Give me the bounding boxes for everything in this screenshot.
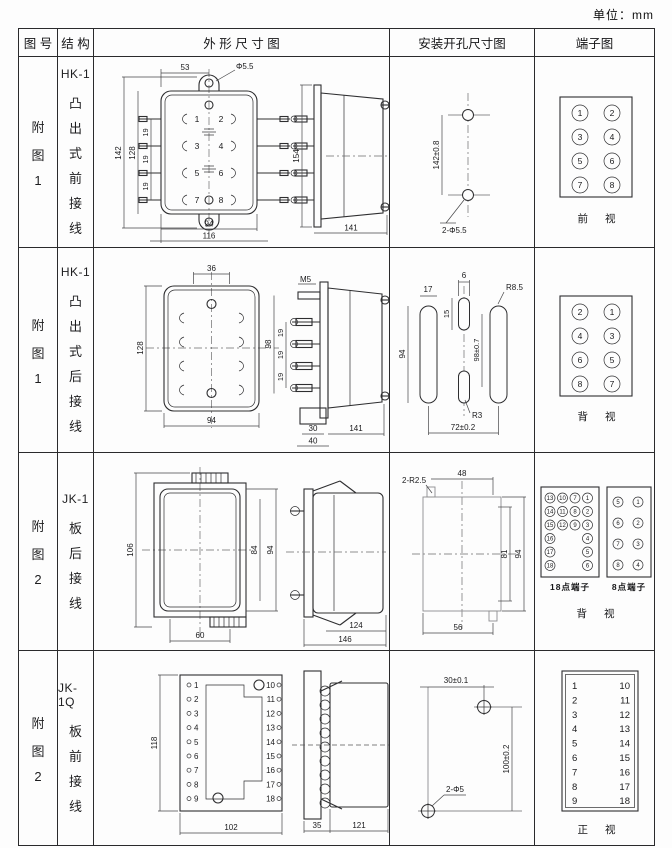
dim-label: 146 (338, 635, 352, 644)
spec-table: 图 号 结 构 外 形 尺 寸 图 安装开孔尺寸图 端子图 附 图 1 HK-1… (18, 28, 655, 846)
datasheet-page: 单位：mm 图 号 结 构 外 形 尺 寸 图 安装开孔尺寸图 端子图 附 图 … (0, 0, 672, 848)
terminal-number: 5 (195, 168, 200, 178)
terminal-number: 5 (616, 500, 620, 506)
front-view: 36 128 94 (136, 264, 279, 428)
terminal-number: 11 (267, 695, 276, 704)
dim-label: 19 (276, 351, 285, 359)
terminal-number: 1 (636, 500, 640, 506)
header-structure: 结 构 (58, 29, 94, 57)
terminal-studs (291, 292, 321, 392)
terminal-number: 8 (577, 379, 582, 389)
structure-char: 线 (69, 796, 82, 815)
terminal-number: 17 (546, 550, 553, 556)
dim-label: 94 (398, 349, 407, 358)
terminal-number: 4 (636, 563, 640, 569)
row3-mounting-drawing: 2-R2.5 48 81 94 56 (390, 453, 534, 650)
terminal-number: 4 (577, 331, 582, 341)
terminal-number: 1 (195, 114, 200, 124)
structure-char: 接 (69, 568, 82, 587)
terminal-number: 7 (194, 766, 199, 775)
row3-outline-drawing: 106 84 94 60 (94, 453, 389, 650)
side-view: 124 146 (286, 481, 386, 647)
dim-label: 121 (352, 821, 366, 830)
terminal-number: 4 (609, 132, 614, 142)
terminal-number: 1 (577, 108, 582, 118)
row3-figure: 附 图 2 (19, 453, 58, 651)
structure-char: 板 (69, 518, 82, 537)
dim-label: 141 (344, 224, 358, 233)
terminal-number: 6 (616, 521, 620, 527)
terminal-number: 17 (266, 780, 275, 789)
row4-structure: JK-1Q 板 前 接 线 (58, 651, 94, 845)
dim-label: 94 (514, 549, 523, 558)
header-mounting: 安装开孔尺寸图 (390, 29, 535, 57)
contact-hooks (183, 114, 236, 205)
terminal-number: 7 (195, 195, 200, 205)
terminal-number: 3 (636, 542, 640, 548)
terminal-number: 8 (194, 780, 199, 789)
dim-label: 60 (196, 631, 205, 640)
side-view: 35 121 (292, 671, 389, 833)
front-view: 1 2 3 4 5 6 7 8 53 Φ5.5 142 128 (114, 62, 290, 243)
terminal-number: 1 (609, 307, 614, 317)
model-label: HK-1 (61, 67, 90, 81)
figure-char: 1 (34, 173, 41, 188)
terminal-number: 6 (194, 752, 199, 761)
header-outline: 外 形 尺 寸 图 (94, 29, 390, 57)
terminal-number: 8 (573, 510, 577, 516)
terminal-number: 6 (577, 355, 582, 365)
terminal-number: 4 (194, 724, 199, 733)
row1-terminal-cell: 1 2 3 4 5 6 7 8 前 视 (535, 57, 654, 248)
row3-structure: JK-1 板 后 接 线 (58, 453, 94, 651)
terminal-number: 3 (609, 331, 614, 341)
terminal-number: 7 (577, 180, 582, 190)
terminal-number: 2 (572, 695, 577, 706)
row2-mounting-cell: 17 6 15 94 98±0.7 R8.5 R3 72±0.2 (390, 248, 535, 453)
mounting-bolts (290, 507, 304, 600)
structure-char: 前 (69, 746, 82, 765)
row4-mounting-drawing: 30±0.1 100±0.2 2-Φ5 (390, 651, 534, 845)
terminal-number: 5 (585, 550, 589, 556)
dim-label: 40 (309, 437, 318, 446)
row2-figure: 附 图 1 (19, 248, 58, 453)
row3-outline-cell: 106 84 94 60 (94, 453, 390, 651)
model-label: JK-1 (62, 492, 89, 506)
terminal-block-caption: 18点端子 (550, 582, 590, 592)
terminal-number: 10 (266, 681, 275, 690)
terminal-number: 15 (546, 523, 553, 529)
terminal-number: 7 (616, 542, 620, 548)
dim-label: 72±0.2 (451, 423, 476, 432)
terminal-number: 14 (266, 738, 275, 747)
structure-char: 线 (69, 593, 82, 612)
dim-label: 19 (276, 373, 285, 381)
terminal-number: 7 (609, 379, 614, 389)
row4-terminal-diagram: 1 2 3 4 5 6 7 8 9 10 11 12 13 14 15 (536, 651, 654, 845)
terminal-number: 11 (620, 695, 630, 706)
row2-mounting-drawing: 17 6 15 94 98±0.7 R8.5 R3 72±0.2 (390, 248, 534, 452)
structure-char: 线 (69, 416, 82, 435)
dim-label: 102 (224, 823, 238, 832)
terminal-number: 8 (219, 195, 224, 205)
dim-label: 81 (500, 549, 509, 558)
terminal-number: 2 (636, 521, 640, 527)
terminal-studs (139, 117, 290, 203)
figure-char: 附 (31, 516, 44, 535)
dim-label: 116 (203, 232, 216, 241)
structure-char: 线 (69, 218, 82, 237)
terminal-number: 10 (619, 681, 630, 692)
row4-outline-cell: 1 2 3 4 5 6 7 8 9 10 11 12 13 (94, 651, 390, 845)
terminal-number: 14 (619, 739, 630, 750)
structure-char: 式 (69, 341, 82, 360)
terminal-number: 2 (609, 108, 614, 118)
terminal-number: 6 (219, 168, 224, 178)
terminal-number: 6 (572, 753, 577, 764)
row2-terminal-diagram: 2 1 4 3 6 5 8 7 背 视 (536, 248, 654, 452)
terminal-number: 11 (559, 510, 566, 516)
row1-mounting-cell: 142±0.8 2-Φ5.5 (390, 57, 535, 248)
view-caption: 前 视 (577, 212, 622, 225)
dim-label: 2-Φ5 (446, 785, 464, 794)
right-terminals: 10 11 12 13 14 15 16 17 18 (266, 681, 281, 804)
dim-label: 118 (150, 736, 159, 749)
dim-label: 56 (454, 623, 463, 632)
terminal-number: 4 (219, 141, 224, 151)
side-view: 154 141 (291, 85, 389, 235)
terminal-number: 6 (609, 156, 614, 166)
dim-label: 30 (309, 424, 318, 433)
terminal-number: 9 (573, 523, 577, 529)
dim-label: 17 (424, 285, 433, 294)
terminal-number: 5 (572, 739, 577, 750)
terminal-number: 1 (572, 681, 577, 692)
terminal-number: 15 (619, 753, 630, 764)
dim-label: 94 (266, 545, 275, 554)
unit-label: 单位：mm (593, 6, 654, 23)
front-view: 1 2 3 4 5 6 7 8 9 10 11 12 13 (150, 675, 282, 835)
dim-label: 154 (292, 149, 301, 163)
terminal-number: 9 (194, 795, 199, 804)
view-caption: 背 视 (577, 410, 622, 423)
terminal-number: 13 (546, 496, 553, 502)
dim-label: 142±0.8 (432, 140, 441, 169)
row1-structure: HK-1 凸 出 式 前 接 线 (58, 57, 94, 248)
terminal-number: 2 (219, 114, 224, 124)
row1-outline-drawing: 1 2 3 4 5 6 7 8 53 Φ5.5 142 128 (94, 57, 389, 247)
figure-char: 1 (34, 371, 41, 386)
terminal-number: 3 (195, 141, 200, 151)
terminal-number: 3 (194, 709, 199, 718)
terminal-number: 13 (619, 724, 630, 735)
terminal-number: 17 (619, 782, 630, 793)
model-label: JK-1Q (58, 681, 93, 709)
terminal-number: 1 (585, 496, 589, 502)
terminal-number: 16 (546, 537, 553, 543)
terminal-number: 13 (266, 724, 275, 733)
terminal-circles: 1 2 3 4 5 6 7 8 (572, 105, 620, 193)
terminal-grid-18: 13 14 15 16 17 18 10 11 12 7 8 9 1 2 3 4 (545, 493, 593, 571)
terminal-number: 18 (546, 564, 553, 570)
terminal-number: 16 (619, 767, 630, 778)
row3-terminal-cell: 13 14 15 16 17 18 10 11 12 7 8 9 1 2 3 4 (535, 453, 654, 651)
row1-mounting-drawing: 142±0.8 2-Φ5.5 (390, 57, 534, 247)
row2-outline-drawing: 36 128 94 (94, 248, 389, 452)
dim-label: 30±0.1 (444, 676, 469, 685)
side-view: M5 19 19 19 98 30 40 141 (264, 275, 389, 446)
terminal-number: 12 (619, 710, 630, 721)
dim-label: 19 (141, 182, 150, 190)
terminal-number: 6 (585, 564, 589, 570)
terminal-number: 8 (572, 782, 577, 793)
structure-char: 接 (69, 193, 82, 212)
dim-label: 53 (181, 63, 190, 72)
header-terminal: 端子图 (535, 29, 654, 57)
left-terminal-numbers: 1 2 3 4 5 6 7 8 9 (572, 681, 577, 807)
dim-label: 98±0.7 (472, 339, 481, 362)
terminal-number: 5 (609, 355, 614, 365)
dim-label: 128 (128, 146, 137, 160)
structure-char: 前 (69, 168, 82, 187)
dim-label: 128 (136, 341, 145, 355)
dim-label: 6 (462, 271, 467, 280)
row2-outline-cell: 36 128 94 (94, 248, 390, 453)
dim-label: 48 (458, 469, 467, 478)
row4-mounting-cell: 30±0.1 100±0.2 2-Φ5 (390, 651, 535, 845)
structure-char: 接 (69, 391, 82, 410)
terminal-number: 2 (585, 510, 589, 516)
figure-char: 附 (31, 117, 44, 136)
dim-label: 2-Φ5.5 (442, 226, 467, 235)
dim-label: 15 (442, 310, 451, 318)
terminal-grid-8: 5 1 6 2 7 3 8 4 (613, 497, 643, 570)
terminal-number: 8 (609, 180, 614, 190)
terminal-number: 2 (577, 307, 582, 317)
dim-label: 36 (207, 264, 216, 273)
screw-label: M5 (300, 275, 312, 284)
radius-label: R3 (472, 411, 483, 420)
figure-char: 2 (34, 572, 41, 587)
dim-label: 98 (264, 339, 273, 348)
row2-terminal-cell: 2 1 4 3 6 5 8 7 背 视 (535, 248, 654, 453)
terminal-circles: 2 1 4 3 6 5 8 7 (572, 304, 620, 392)
terminal-number: 5 (577, 156, 582, 166)
dim-label: 19 (141, 128, 150, 136)
terminal-number: 8 (616, 563, 620, 569)
terminal-number: 15 (266, 752, 275, 761)
dim-label: 141 (349, 424, 363, 433)
terminal-number: 4 (585, 537, 589, 543)
dim-label: 19 (276, 329, 285, 337)
structure-char: 后 (69, 366, 82, 385)
row4-outline-drawing: 1 2 3 4 5 6 7 8 9 10 11 12 13 (94, 651, 389, 845)
dim-label: 94 (205, 220, 214, 229)
view-caption: 正 视 (577, 823, 622, 836)
dim-label: 124 (349, 621, 363, 630)
header-figure: 图 号 (19, 29, 58, 57)
row1-figure: 附 图 1 (19, 57, 58, 248)
terminal-number: 18 (266, 795, 275, 804)
notch-label: 2-R2.5 (402, 476, 427, 485)
figure-char: 图 (31, 741, 44, 760)
row1-outline-cell: 1 2 3 4 5 6 7 8 53 Φ5.5 142 128 (94, 57, 390, 248)
terminal-number: 3 (572, 710, 577, 721)
row3-mounting-cell: 2-R2.5 48 81 94 56 (390, 453, 535, 651)
terminal-number: 3 (585, 523, 589, 529)
terminal-number: 4 (572, 724, 577, 735)
dim-label: 84 (250, 545, 259, 554)
model-label: HK-1 (61, 265, 90, 279)
figure-char: 图 (31, 145, 44, 164)
structure-char: 出 (69, 316, 82, 335)
terminal-number: 5 (194, 738, 199, 747)
terminal-number: 18 (619, 796, 630, 807)
figure-char: 图 (31, 544, 44, 563)
dim-label: 35 (313, 821, 322, 830)
dim-label: 142 (114, 146, 123, 160)
terminal-number: 12 (559, 523, 566, 529)
view-caption: 背 视 (576, 607, 621, 620)
terminal-number: 2 (194, 695, 199, 704)
terminal-number: 7 (573, 496, 577, 502)
terminal-number: 9 (572, 796, 577, 807)
figure-char: 附 (31, 713, 44, 732)
structure-char: 接 (69, 771, 82, 790)
figure-char: 2 (34, 769, 41, 784)
structure-char: 出 (69, 118, 82, 137)
dim-label: 100±0.2 (502, 744, 511, 773)
dim-label: 94 (207, 416, 216, 425)
dim-label: Φ5.5 (236, 62, 254, 71)
structure-char: 式 (69, 143, 82, 162)
terminal-number: 3 (577, 132, 582, 142)
structure-char: 后 (69, 543, 82, 562)
row4-figure: 附 图 2 (19, 651, 58, 845)
terminal-number: 16 (266, 766, 275, 775)
right-terminal-numbers: 10 11 12 13 14 15 16 17 18 (619, 681, 630, 807)
structure-char: 板 (69, 721, 82, 740)
terminal-number: 7 (572, 767, 577, 778)
figure-char: 图 (31, 343, 44, 362)
terminal-block-caption: 8点端子 (611, 582, 645, 592)
terminal-number: 1 (194, 681, 199, 690)
terminal-number: 12 (266, 709, 275, 718)
structure-char: 凸 (69, 93, 82, 112)
row1-terminal-diagram: 1 2 3 4 5 6 7 8 前 视 (536, 57, 654, 247)
row3-terminal-diagram: 13 14 15 16 17 18 10 11 12 7 8 9 1 2 3 4 (536, 453, 654, 650)
left-terminals: 1 2 3 4 5 6 7 8 9 (187, 681, 199, 804)
structure-char: 凸 (69, 291, 82, 310)
front-view: 106 84 94 60 (126, 467, 278, 643)
terminal-number: 10 (559, 496, 566, 502)
radius-label: R8.5 (506, 283, 523, 292)
dim-label: 106 (126, 543, 135, 557)
row4-terminal-cell: 1 2 3 4 5 6 7 8 9 10 11 12 13 14 15 (535, 651, 654, 845)
terminal-number: 14 (546, 510, 553, 516)
figure-char: 附 (31, 315, 44, 334)
row2-structure: HK-1 凸 出 式 后 接 线 (58, 248, 94, 453)
dim-label: 19 (141, 155, 150, 163)
